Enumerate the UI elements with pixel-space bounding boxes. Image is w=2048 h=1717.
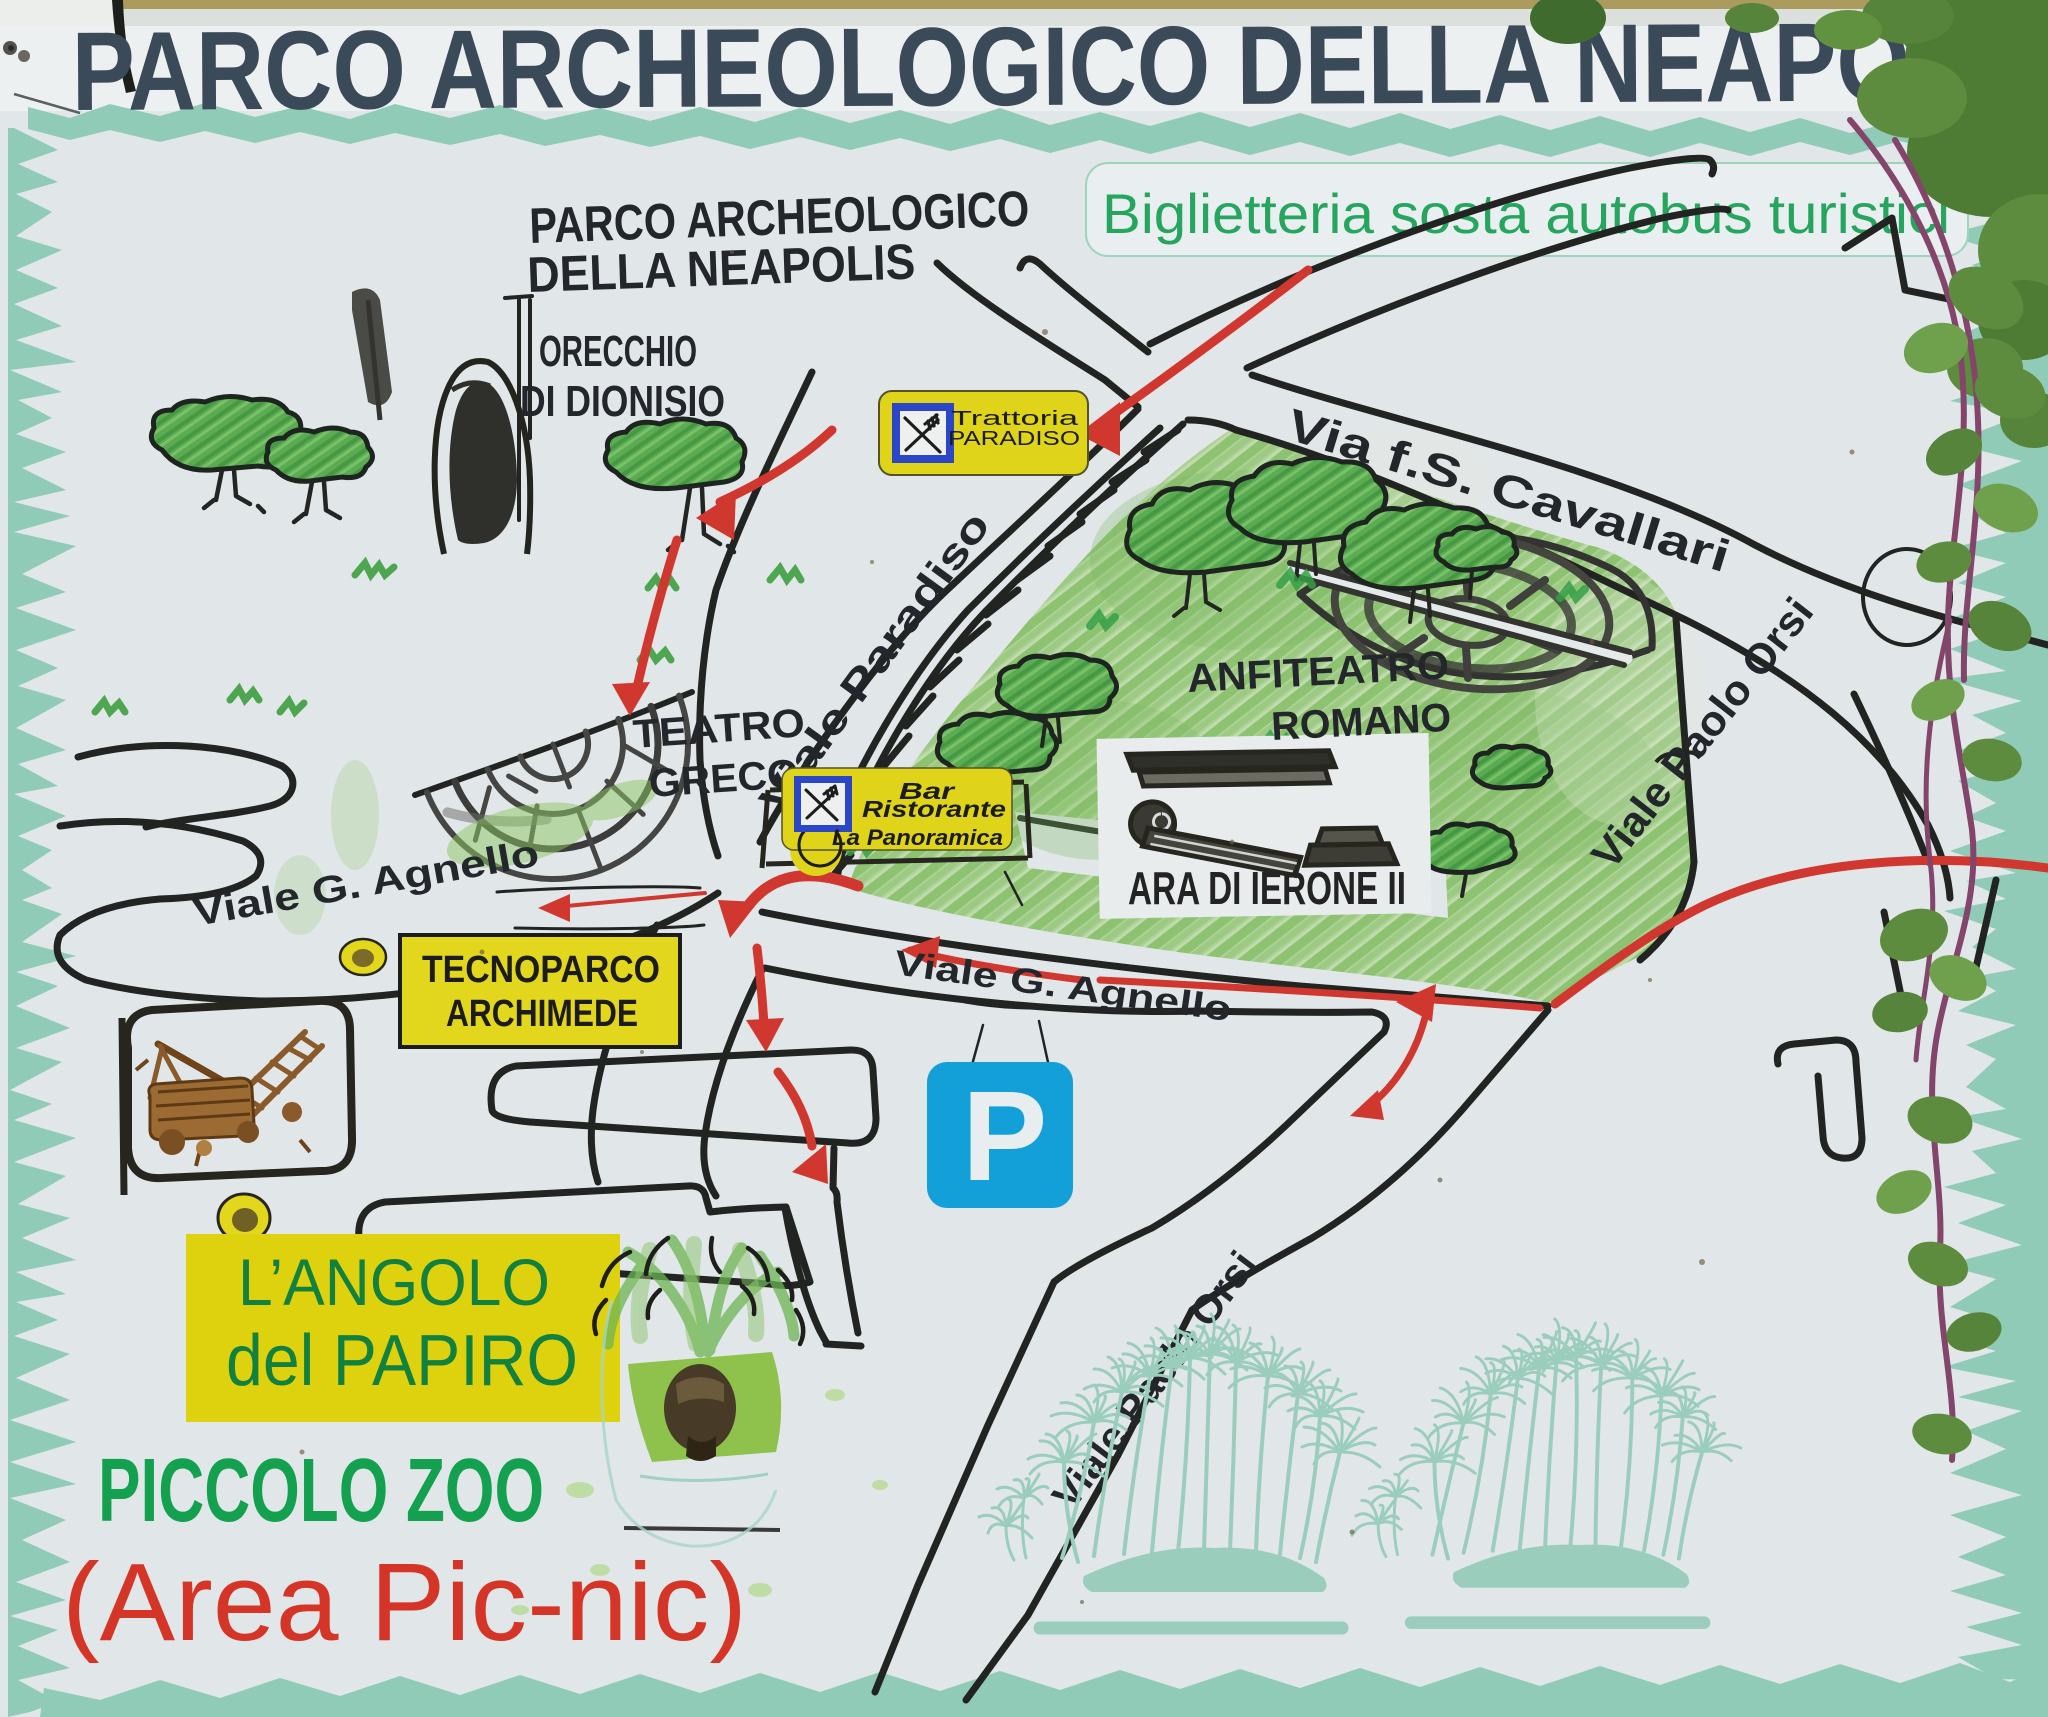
svg-text:PICCOLO ZOO: PICCOLO ZOO xyxy=(98,1441,544,1541)
svg-text:ORECCHIO: ORECCHIO xyxy=(539,327,697,376)
svg-text:P: P xyxy=(962,1065,1047,1208)
svg-text:del PAPIRO: del PAPIRO xyxy=(226,1321,578,1401)
svg-text:DI DIONISIO: DI DIONISIO xyxy=(520,377,725,426)
svg-text:ARCHIMEDE: ARCHIMEDE xyxy=(446,993,638,1035)
svg-text:ARA DI IERONE II: ARA DI IERONE II xyxy=(1128,862,1406,914)
svg-text:Trattoria: Trattoria xyxy=(951,408,1079,430)
svg-text:L’ANGOLO: L’ANGOLO xyxy=(238,1245,550,1319)
svg-text:La Panoramica: La Panoramica xyxy=(832,825,1003,850)
svg-text:Ristorante: Ristorante xyxy=(862,796,1006,822)
svg-text:PARADISO: PARADISO xyxy=(948,428,1080,450)
svg-text:(Area Pic-nic): (Area Pic-nic) xyxy=(62,1541,747,1664)
svg-text:ROMANO: ROMANO xyxy=(1270,696,1452,749)
svg-text:TECNOPARCO: TECNOPARCO xyxy=(422,949,660,991)
